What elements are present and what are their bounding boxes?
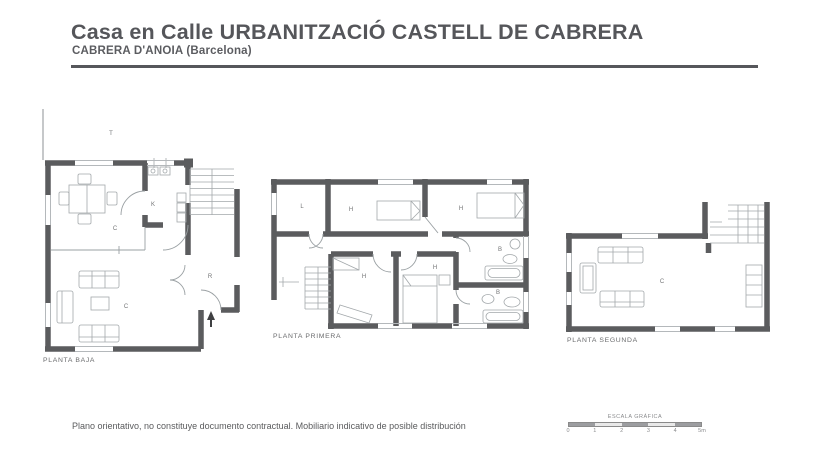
scale-bar: ESCALA GRÁFICA 0 1 2 3 4 5m (568, 414, 702, 436)
scale-tick: 4 (674, 428, 677, 434)
entrance-arrow-icon (207, 311, 215, 327)
plan-caption-segunda: PLANTA SEGUNDA (567, 337, 638, 344)
living-sofa-set (57, 271, 119, 342)
stairs (710, 205, 764, 243)
plan-caption-baja: PLANTA BAJA (43, 357, 95, 364)
interior-lines (51, 227, 145, 254)
bathroom-fixtures (482, 239, 523, 323)
scale-tick: 2 (620, 428, 623, 434)
dining-table-set (59, 174, 117, 224)
floorplan-page: Casa en Calle URBANITZACIÓ CASTELL DE CA… (0, 0, 816, 459)
beds (333, 193, 524, 323)
room-label-r: R (208, 274, 213, 280)
room-label-l: L (300, 204, 304, 210)
scale-tick: 5m (698, 428, 706, 434)
scale-tick: 0 (566, 428, 569, 434)
floor-plan-planta-segunda: C PLANTA SEGUNDA (560, 195, 790, 355)
room-label-b2: B (496, 290, 500, 296)
walls (566, 202, 770, 332)
room-label-c2: C (124, 304, 129, 310)
stairs (279, 267, 331, 309)
wall-corner-block (184, 159, 193, 168)
room-label-h4: H (362, 274, 366, 280)
room-label-b1: B (498, 247, 502, 253)
windows (46, 158, 175, 352)
scale-bar-label: ESCALA GRÁFICA (568, 414, 702, 420)
page-title: Casa en Calle URBANITZACIÓ CASTELL DE CA… (71, 20, 643, 45)
room-label-k: K (151, 202, 155, 208)
sofa-set (580, 247, 762, 307)
page-subtitle: CABRERA D'ANOIA (Barcelona) (72, 45, 252, 57)
scale-segment (675, 423, 701, 426)
room-label-h2: H (459, 206, 463, 212)
scale-segment (595, 423, 621, 426)
scale-tick: 1 (593, 428, 596, 434)
floor-plan-planta-primera: L H H B H H B PLANTA PRIMERA (265, 172, 540, 342)
plan-caption-primera: PLANTA PRIMERA (273, 333, 341, 340)
scale-tick: 3 (647, 428, 650, 434)
scale-bar-segments (568, 422, 702, 427)
scale-segment (648, 423, 674, 426)
scale-segment (622, 423, 648, 426)
room-label-t: T (109, 131, 113, 137)
room-label-c3: C (660, 279, 665, 285)
header-divider (71, 65, 758, 68)
scale-bar-ticks: 0 1 2 3 4 5m (568, 428, 702, 436)
room-label-h3: H (433, 265, 437, 271)
scale-segment (569, 423, 595, 426)
disclaimer-text: Plano orientativo, no constituye documen… (72, 421, 466, 431)
room-label-h1: H (349, 207, 353, 213)
room-label-c1: C (113, 226, 118, 232)
floor-plan-planta-baja: T C K C R PLANTA BAJA (35, 105, 250, 367)
walls (271, 179, 529, 329)
kitchen-counter (148, 167, 186, 222)
stairs (190, 169, 234, 215)
door-arcs (121, 191, 221, 310)
